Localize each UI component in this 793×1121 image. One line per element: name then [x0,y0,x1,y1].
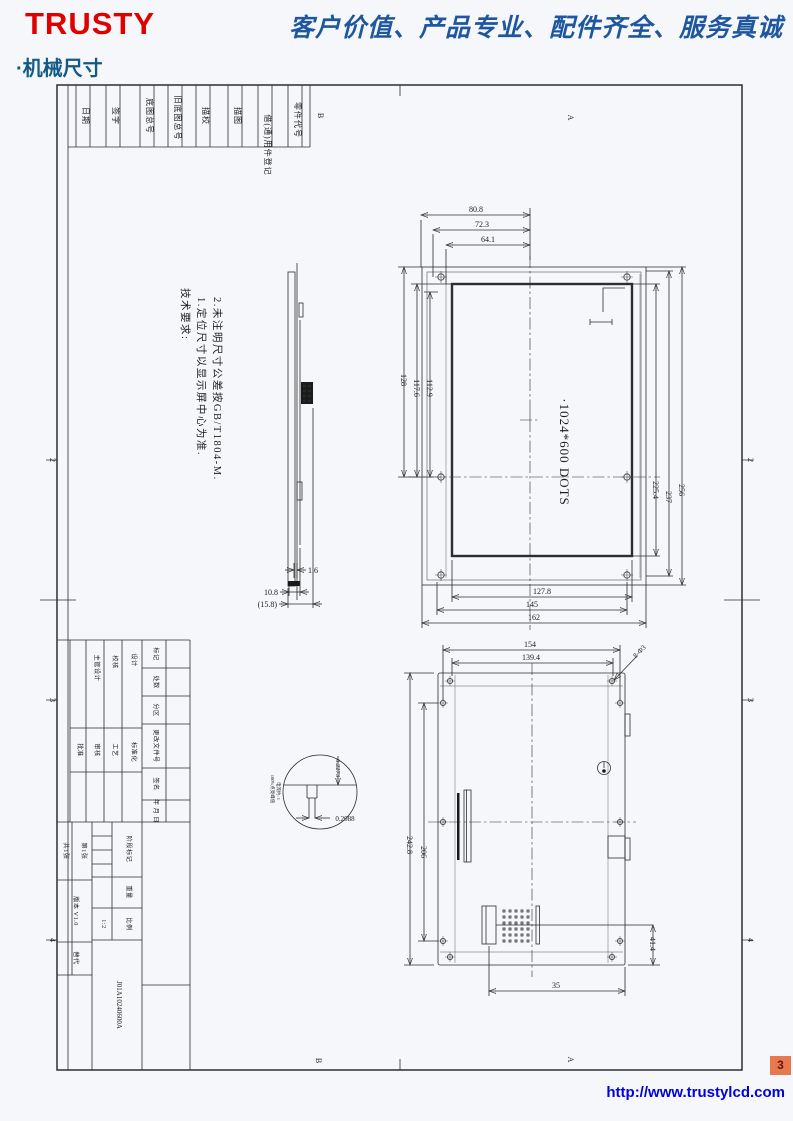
rear-dim-139-4: 139.4 [522,653,540,662]
page-number-badge: 3 [770,1056,791,1075]
front-resolution-label: ·1024*600 DOTS [557,398,572,506]
tb-role-auditor: 审核 [93,743,101,756]
front-dim-72-3: 72.3 [475,220,489,229]
footer-url-link[interactable]: http://www.trustylcd.com [606,1084,785,1101]
tb-version: 版本 V1.0 [72,896,80,926]
notes-title: 技术要求: [179,288,192,340]
tb-role-checker: 校核 [111,655,119,668]
front-dim-256: 256 [677,484,686,496]
strip-label-master-no: 底图总号 [145,98,155,134]
tb-rev-change-doc: 更改文件号 [152,729,160,762]
zone-number-right-3: 3 [746,698,755,702]
tb-replace: 替代 [72,951,80,965]
front-dim-162: 162 [528,613,540,622]
strip-label-borrowed-parts: 借(通)用件登记 [263,114,273,175]
mechanical-drawing: B A B A 2 3 4 2 3 4 日期 签字 底图总号 旧底图总号 描校 … [0,80,793,1121]
detail-note-2: 电流约: 1 [275,782,282,800]
zone-letter-top-b: B [316,113,325,119]
detail-dim-v: 0.2273 [334,759,341,777]
side-dim-15-8: (15.8) [258,600,278,609]
front-dim-237: 237 [664,491,673,503]
rear-dim-206: 206 [419,846,428,858]
front-dim-128: 128 [399,374,408,386]
tb-rev-count: 处数 [152,675,160,689]
tb-role-standardization: 标准化 [130,742,138,762]
strip-label-date: 日期 [81,107,90,125]
strip-label-old-master-no: 旧底图总号 [173,96,183,141]
zone-letter-bottom-a: A [566,1057,575,1064]
front-dim-145: 145 [526,600,538,609]
tb-role-approver: 批准 [76,743,84,756]
zone-number-right-4: 4 [746,938,755,942]
rear-dim-242-8: 242.8 [405,836,414,854]
notes-line2: 2.未注明尺寸公差按GB/T1804-M. [211,297,224,481]
section-title: ·机械尺寸 [16,52,103,81]
tb-sheet-number: 第1张 [80,843,88,860]
rear-dim-41-4: 41.4 [648,937,657,951]
rear-view: 154 139.4 8-Ф3 242.8 206 41.4 35 [404,640,660,996]
side-dim-1-6: 1.6 [308,566,318,575]
notes-line1: 1.定位尺寸以显示屏中心为准. [195,297,208,456]
zone-number-left-2: 2 [48,458,57,462]
detail-dim-h: 0.2088 [335,815,355,823]
top-strip-table: 日期 签字 底图总号 旧底图总号 描校 描图 借(通)用件登记 零件代号 [68,85,310,176]
side-view: 1.6 10.8 (15.8) [258,263,322,609]
tb-role-process: 工艺 [111,743,119,756]
zone-letter-top-a: A [566,115,575,122]
rear-dim-35: 35 [552,981,560,990]
title-block: 主管设计 校核 设计 批准 审核 工艺 标准化 标记 处数 分区 更改文件号 签… [57,640,190,1070]
zone-number-left-3: 3 [48,698,57,702]
detail-circle: 0.2273 0.2088 100%点亮峰值 电流约: 1 [269,755,357,829]
tb-weight-label: 重量 [125,885,133,898]
rear-hole-callout: 8-Ф3 [631,643,648,660]
tb-role-chief-designer: 主管设计 [93,655,101,682]
tb-rev-mark: 标记 [152,647,160,660]
rear-dim-154: 154 [524,640,536,649]
front-dim-225-4: 225.4 [651,481,660,499]
tb-scale-label: 比例 [125,917,133,930]
strip-label-trace-draw: 描图 [233,107,243,125]
tb-stage-label: 阶段标记 [125,836,133,863]
front-dim-117-6: 117.6 [412,379,421,397]
brand-logo: TRUSTY [25,6,155,42]
strip-label-part-code: 零件代号 [293,102,303,138]
technical-notes: 技术要求: 1.定位尺寸以显示屏中心为准. 2.未注明尺寸公差按GB/T1804… [179,288,224,481]
detail-note-1: 100%点亮峰值 [269,775,276,804]
tb-rev-signature: 签名 [152,777,160,790]
front-dim-80-8: 80.8 [469,205,483,214]
front-dim-112-9: 112.9 [425,379,434,397]
zone-letter-bottom-b: B [314,1058,323,1064]
tb-rev-date: 年 月 日 [152,799,160,823]
tb-scale-value: 1:2 [100,919,107,928]
tb-role-designer: 设计 [130,653,138,666]
brand-slogan: 客户价值、产品专业、配件齐全、服务真诚 [283,8,783,44]
zone-number-right-2: 2 [746,458,755,462]
strip-label-trace-check: 描校 [201,107,211,125]
zone-number-left-4: 4 [48,938,57,942]
tb-sheet-total: 共1张 [62,843,70,860]
side-dim-10-8: 10.8 [264,588,278,597]
tb-rev-zone: 分区 [152,703,160,716]
front-dim-127-8: 127.8 [533,587,551,596]
sheet-border: B A B A 2 3 4 2 3 4 [40,85,760,1070]
strip-label-signature: 签字 [111,107,121,125]
front-dim-64-1: 64.1 [481,235,495,244]
front-view: 80.8 72.3 64.1 112.9 117.6 128 225.4 237… [398,205,686,630]
tb-part-number: J01A10240600A [115,981,123,1029]
